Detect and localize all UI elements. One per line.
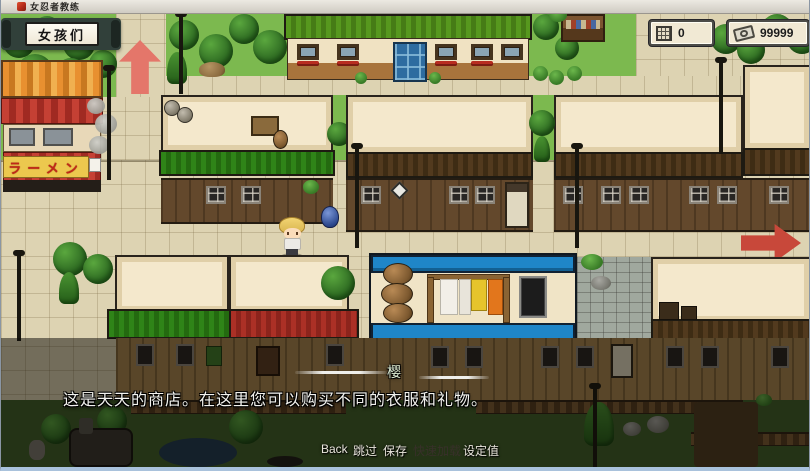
menu-back[interactable]: Back [321,442,348,456]
dialog-text: 这是天天的商店。在这里您可以购买不同的衣服和礼物。 [63,386,783,410]
ramen-shop: ラーメン [1,60,103,192]
window [9,128,35,146]
pine-tree [167,52,187,84]
plant [303,180,319,194]
book-stand [561,14,605,42]
shoji-window [241,186,261,204]
stone [591,276,611,290]
counter-value: 0 [678,26,685,40]
barrel [383,263,413,285]
rock [199,62,225,77]
window-title: 女忍者教练 [30,0,80,13]
cloth-white [459,279,471,315]
menu-skip[interactable]: 跳过 [353,442,377,459]
flower-pot [429,72,441,84]
tree [253,30,287,64]
shoji-window [601,186,621,204]
bush [549,70,564,85]
dialog-box[interactable]: 樱 这是天天的商店。在这里您可以购买不同的衣服和礼物。 Back 跳过 保存 快… [1,338,810,467]
game-map[interactable]: ラーメン [1,14,810,467]
eye [296,232,298,235]
flower-box [337,61,359,66]
grid-icon [656,26,672,41]
ramen-sign: ラーメン [3,156,89,178]
lamppost [17,255,21,341]
menu-quickload[interactable]: 快速加载 [413,442,461,459]
bush [581,254,603,270]
crate [681,306,697,320]
smoke [89,136,109,154]
awning-brown [743,148,810,176]
money-box: 99999 [727,20,809,46]
rooftop [161,95,333,152]
tree [83,254,113,284]
smoke [87,98,105,114]
shoji-window [717,186,737,204]
money-icon [733,24,756,41]
smoke [95,114,117,134]
awning-brown [554,152,743,178]
lamppost [107,70,111,180]
barrel [381,283,413,305]
sign-plaque [89,158,101,172]
player-character [278,217,306,259]
shoji-window [206,186,226,204]
shoji-window [475,186,495,204]
barrel [273,130,288,149]
app-icon [17,2,26,11]
tree [529,110,555,136]
window [297,44,319,60]
rooftop [743,65,810,150]
lamppost [719,62,723,154]
cloth-white [440,279,458,315]
lamppost [575,148,579,248]
shoji-window [563,186,583,204]
flower-box [471,61,493,66]
rooftop [346,95,533,154]
rack-post [427,277,434,323]
money-value: 99999 [760,26,793,40]
ramen-upper-curtain [1,60,103,98]
shoji-window [689,186,709,204]
building-roof-green [284,14,532,40]
shop-awning-red [229,309,359,339]
tall-door [505,182,529,228]
flower-pot [355,72,367,84]
lamppost [355,148,359,248]
tree [53,242,87,276]
awning-brown [346,152,533,178]
window [501,44,523,60]
barrel [383,303,413,323]
name-line-left [295,371,387,374]
speaker-name: 樱 [387,362,401,382]
window [471,44,493,60]
game-window: 女忍者教练 [0,0,810,471]
cloth-yellow [471,279,487,311]
barrel [177,107,193,123]
cloth-orange [488,279,503,315]
bush [567,66,582,81]
dark-window [519,276,547,318]
blue-door [393,42,427,82]
pine-tree [534,136,550,162]
crate [659,302,679,320]
tree [321,266,355,300]
shop-awning-green [107,309,231,339]
eye [287,232,289,235]
shoji-window [361,186,381,204]
shop-roof [115,255,229,313]
flower-box [297,61,319,66]
girls-button[interactable]: 女孩们 [25,22,99,46]
flower-box [435,61,457,66]
tree [169,20,199,50]
bush [533,66,548,81]
menu-save[interactable]: 保存 [383,442,407,459]
window [337,44,359,60]
shoji-window [449,186,469,204]
ramen-entrance [3,180,101,192]
awning-green [159,150,335,176]
lamppost [179,16,183,94]
rack-post [503,277,510,323]
shoji-window [629,186,649,204]
blue-vase [321,206,339,228]
title-bar[interactable]: 女忍者教练 [1,0,810,14]
window [43,128,73,146]
window [435,44,457,60]
name-line-right [419,376,489,379]
counter-box: 0 [649,20,714,46]
menu-settings[interactable]: 设定值 [463,442,499,459]
shoji-window [769,186,789,204]
books [566,20,600,29]
